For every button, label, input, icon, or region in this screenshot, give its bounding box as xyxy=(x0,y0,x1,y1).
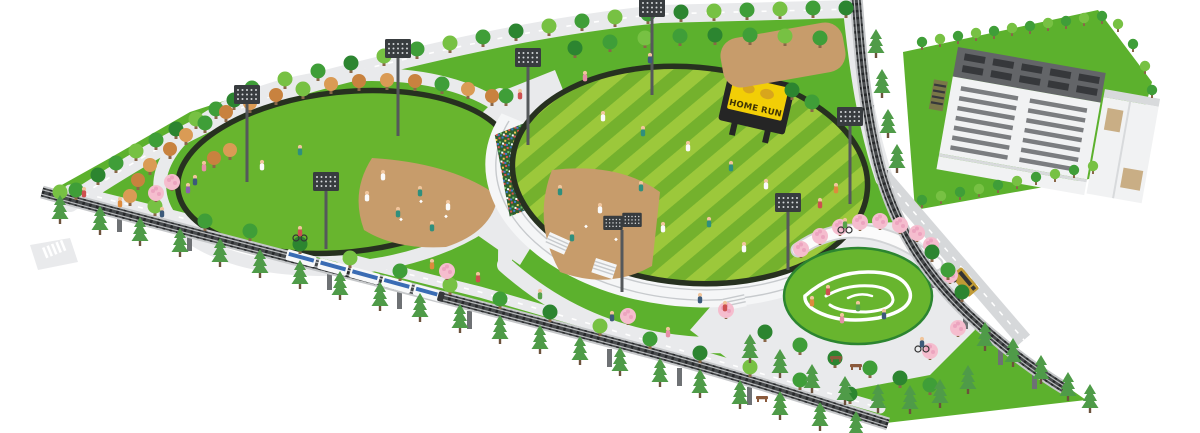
person-icon xyxy=(698,293,702,304)
person-icon xyxy=(430,221,434,232)
person-icon xyxy=(260,160,264,171)
person-icon xyxy=(82,187,86,198)
person-icon xyxy=(558,185,562,196)
annex-door-panel xyxy=(1120,168,1143,191)
person-icon xyxy=(298,145,302,156)
person-icon xyxy=(186,183,190,194)
person-icon xyxy=(639,181,643,192)
person-icon xyxy=(648,53,652,64)
person-icon xyxy=(396,207,400,218)
person-icon xyxy=(826,285,830,296)
person-icon xyxy=(193,175,197,186)
person-icon xyxy=(882,309,886,320)
person-icon xyxy=(430,259,434,270)
person-icon xyxy=(834,183,838,194)
person-icon xyxy=(381,170,385,181)
person-icon xyxy=(202,161,206,172)
person-icon xyxy=(118,197,122,208)
person-icon xyxy=(160,207,164,218)
person-icon xyxy=(729,161,733,172)
person-icon xyxy=(476,272,480,283)
person-icon xyxy=(723,301,727,312)
person-icon xyxy=(518,89,522,100)
park-map-illustration: HOME RUN xyxy=(0,0,1200,433)
person-icon xyxy=(810,296,814,307)
person-icon xyxy=(856,301,860,312)
person-icon xyxy=(818,198,822,209)
person-icon xyxy=(742,242,746,253)
person-icon xyxy=(446,200,450,211)
person-icon xyxy=(661,222,665,233)
person-icon xyxy=(707,217,711,228)
person-icon xyxy=(601,111,605,122)
person-icon xyxy=(538,289,542,300)
person-icon xyxy=(598,203,602,214)
person-icon xyxy=(641,126,645,136)
person-icon xyxy=(583,71,587,82)
person-icon xyxy=(365,191,369,202)
person-icon xyxy=(570,231,574,242)
person-icon xyxy=(666,327,670,338)
person-icon xyxy=(610,311,614,322)
person-icon xyxy=(840,313,844,324)
person-icon xyxy=(764,179,768,190)
person-icon xyxy=(686,141,690,152)
person-icon xyxy=(418,186,422,197)
